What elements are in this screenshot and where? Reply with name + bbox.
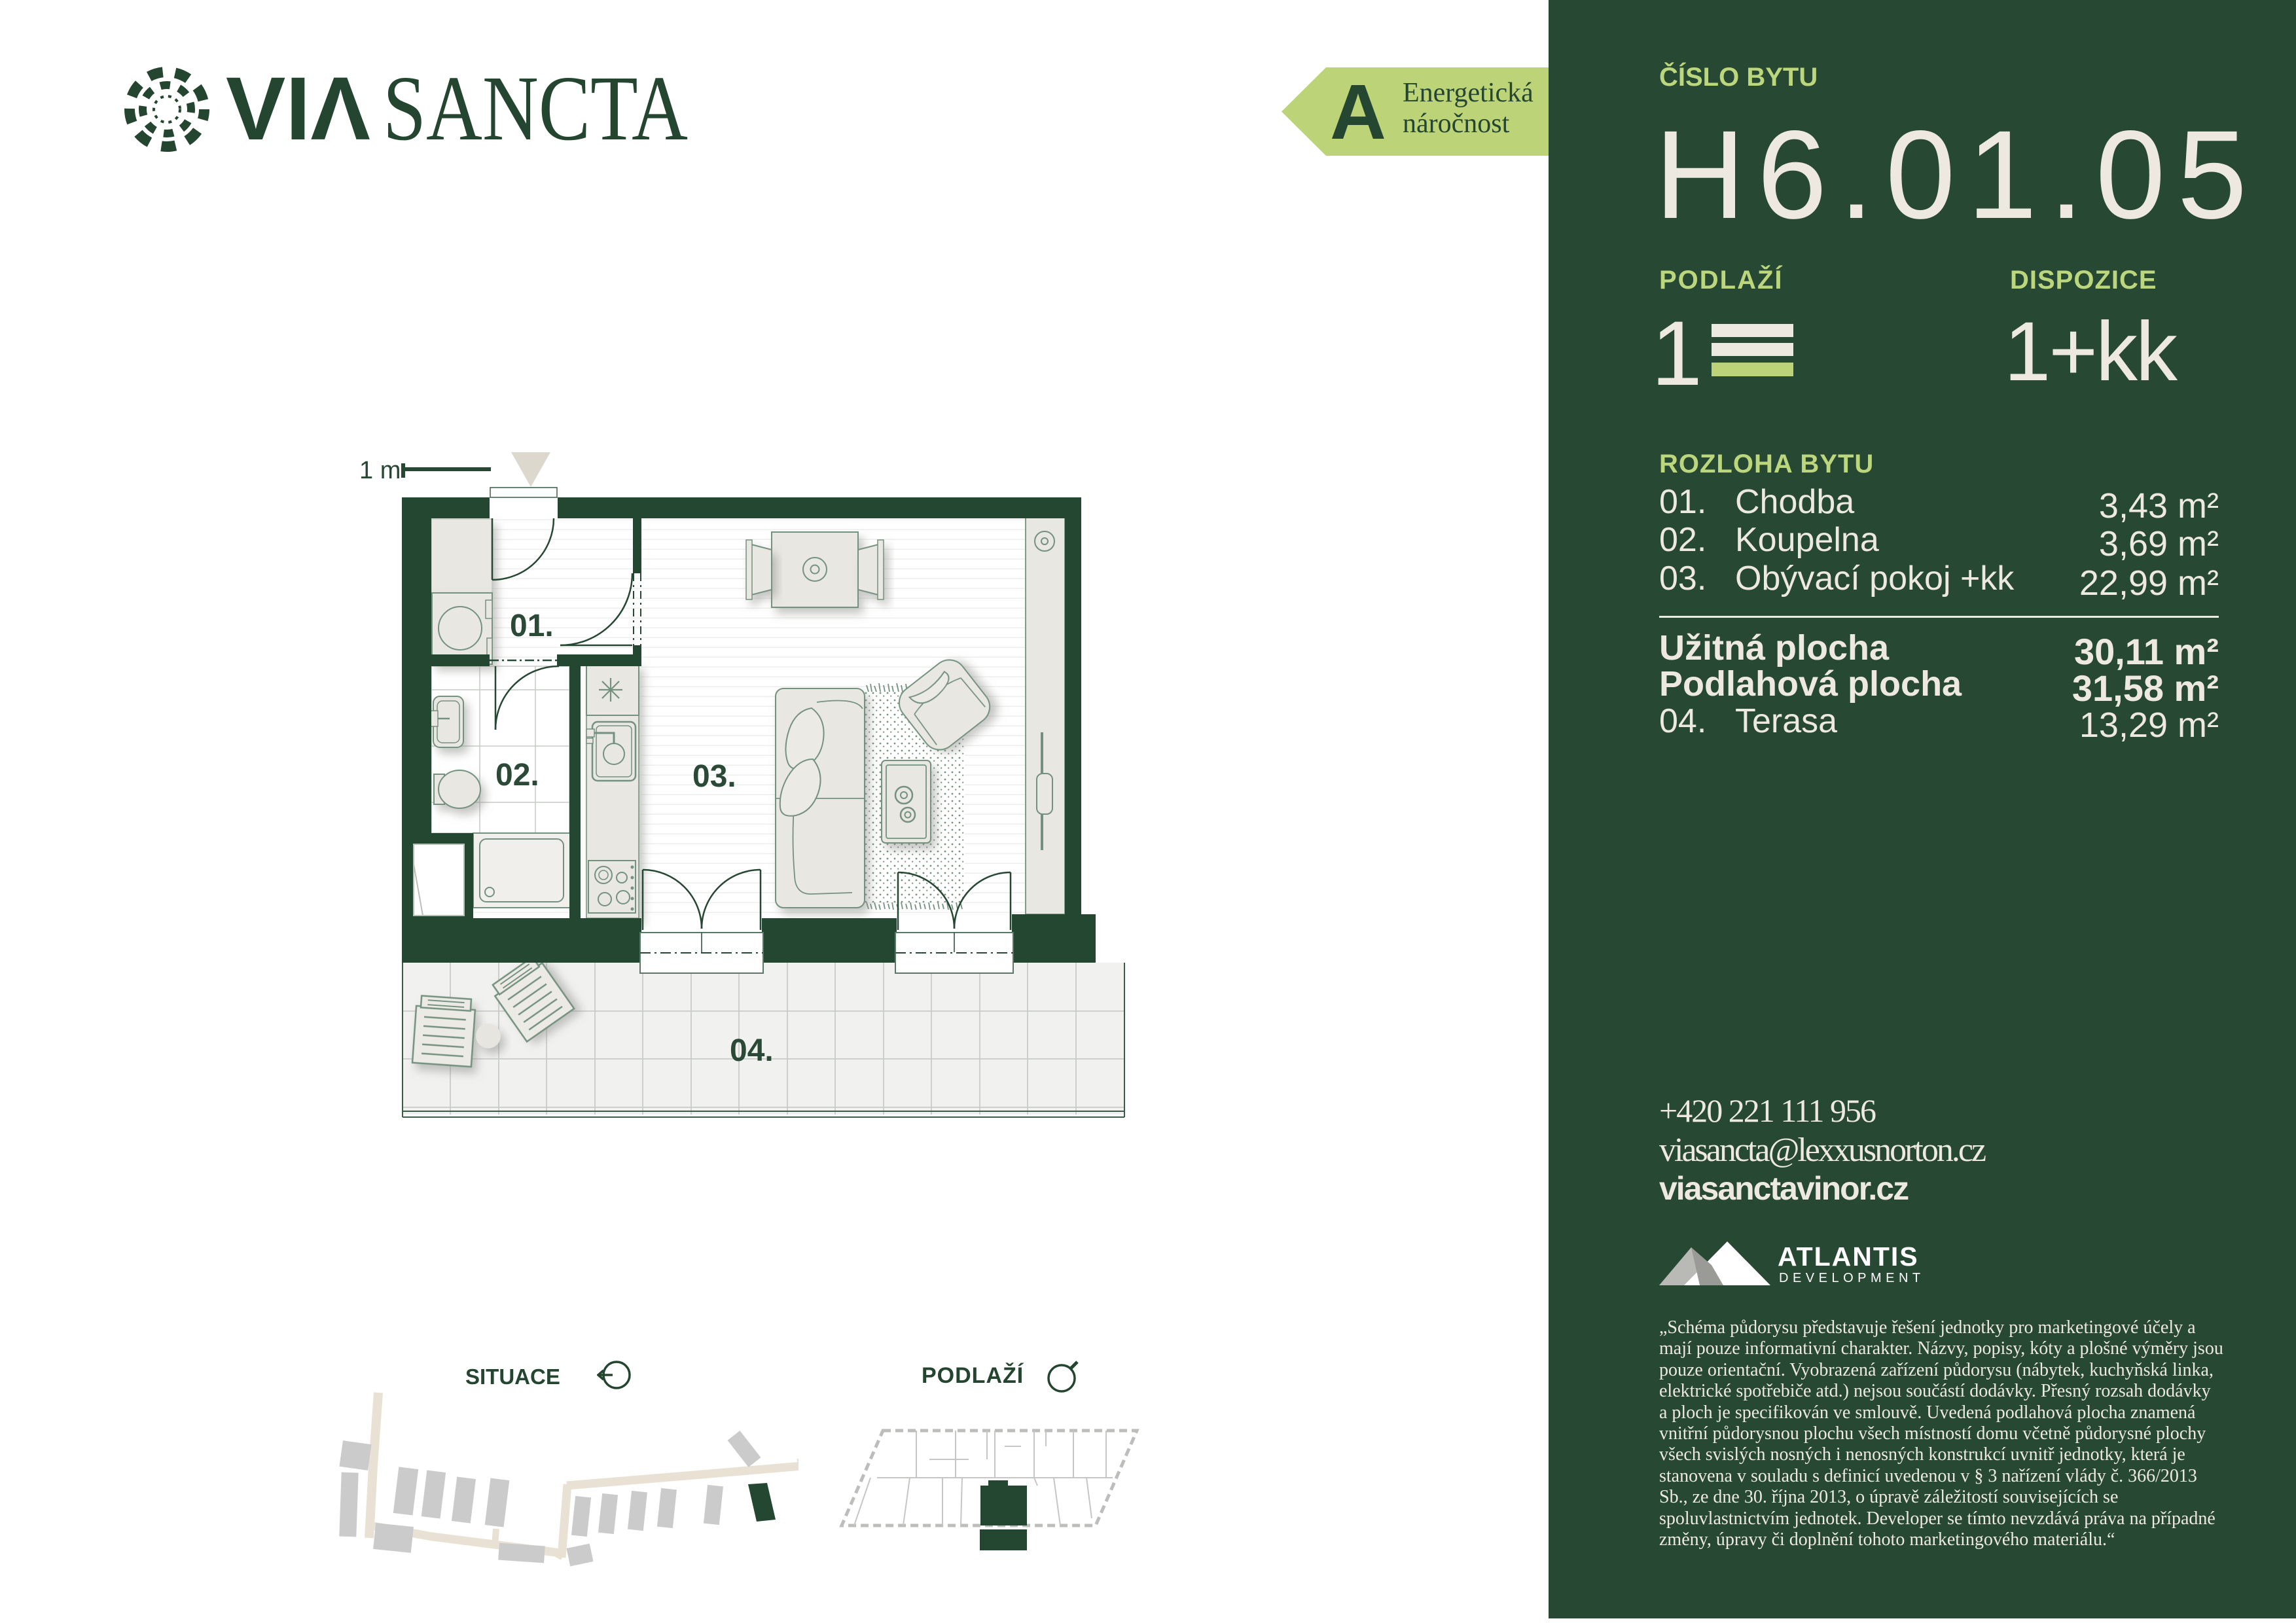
- svg-text:SANCTA: SANCTA: [383, 56, 688, 160]
- svg-text:03.: 03.: [692, 759, 736, 794]
- svg-text:DEVELOPMENT: DEVELOPMENT: [1779, 1271, 1925, 1285]
- svg-text:VIΛ: VIΛ: [226, 59, 370, 159]
- svg-text:02.: 02.: [495, 758, 539, 793]
- svg-text:01.: 01.: [510, 609, 554, 643]
- svg-text:ATLANTIS: ATLANTIS: [1778, 1241, 1919, 1272]
- svg-text:1 m: 1 m: [359, 457, 401, 484]
- svg-text:04.: 04.: [730, 1033, 774, 1068]
